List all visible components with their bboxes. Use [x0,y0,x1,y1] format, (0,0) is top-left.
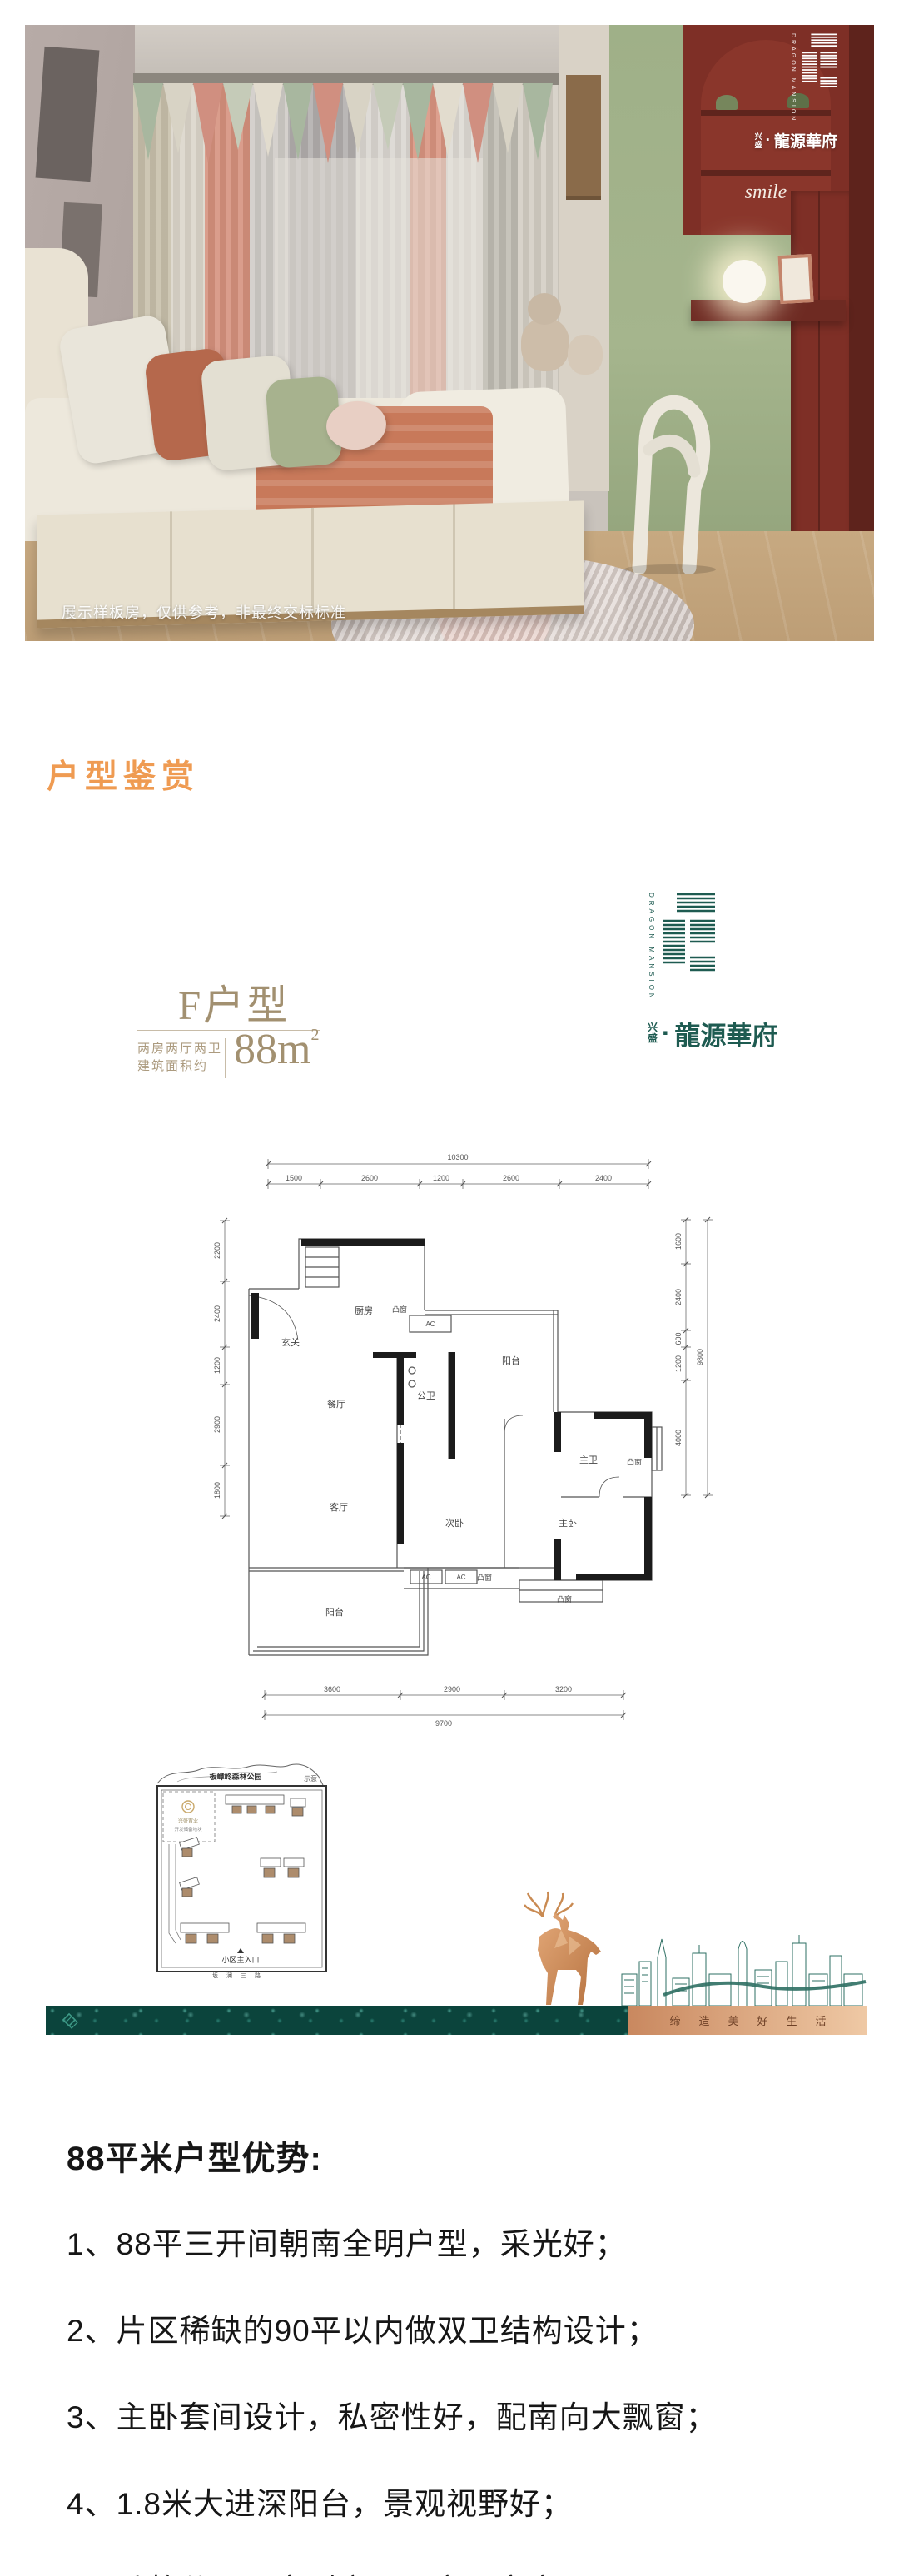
svg-text:阳台: 阳台 [325,1606,344,1618]
unit-vertical-divider [225,1038,226,1078]
photo-pennant-valance [133,83,559,167]
watermark-brand-en: DRAGON MANSION [790,33,796,122]
photo-chair [608,325,749,574]
svg-text:10300: 10300 [447,1153,468,1161]
unit-name: F户型 [178,972,290,1032]
entrance-label: 小区主入口 [221,1955,259,1964]
deer-graphic [499,1890,624,2008]
dimension-lines [220,1159,713,1720]
photo-teddy-bear-small [568,335,603,375]
banner-teal-strip [46,2006,628,2035]
advantage-item: 5、动静分区，户型方正，实用率高 [67,2565,866,2576]
reserve-plot: 兴盛置业 开发储备地块 [163,1792,215,1842]
svg-text:次卧: 次卧 [445,1517,464,1529]
svg-text:2200: 2200 [213,1242,221,1259]
brand-mark-icon [662,893,715,972]
svg-text:开发储备地块: 开发储备地块 [174,1826,202,1833]
brand-name: 兴盛 · 龍源華府 [648,1015,831,1052]
svg-text:4000: 4000 [674,1430,683,1446]
photo-desk [691,300,846,321]
svg-text:1200: 1200 [213,1357,221,1374]
svg-text:兴盛置业: 兴盛置业 [178,1818,198,1824]
park-label: 板嶂岭森林公园 [209,1772,261,1781]
banner-copper-panel: 缔造美好生活 [628,2006,867,2035]
unit-layout: 两房两厅两卫 [137,1040,222,1057]
floor-plan-black-walls [251,1239,652,1580]
svg-text:3200: 3200 [555,1685,572,1693]
deer-body [538,1913,601,2005]
svg-text:9700: 9700 [435,1719,452,1728]
schematic-note: 示意 [304,1774,317,1783]
deer-antlers [524,1892,573,1918]
advantage-item: 4、1.8米大进深阳台，景观视野好； [67,2479,866,2524]
svg-text:1800: 1800 [213,1482,221,1499]
svg-text:凸窗: 凸窗 [627,1457,642,1466]
svg-text:2600: 2600 [503,1174,519,1182]
svg-text:2600: 2600 [361,1174,378,1182]
banner-slogan: 缔造美好生活 [651,2012,844,2028]
svg-text:3600: 3600 [324,1685,340,1693]
unit-area-label: 建筑面积约 [137,1057,222,1075]
watermark-brand-name: 兴盛 · 龍源華府 [688,129,837,152]
advantages-section: 88平米户型优势: 1、88平三开间朝南全明户型，采光好； 2、片区稀缺的90平… [67,2131,866,2576]
svg-text:AC: AC [456,1574,465,1581]
road-label: 坂澜三路 [212,1972,269,1979]
svg-text:主卧: 主卧 [559,1518,577,1529]
brand-mark-icon [801,33,837,88]
svg-text:2400: 2400 [595,1174,612,1182]
svg-text:主卫: 主卫 [579,1455,598,1465]
brand-en-text: DRAGON MANSION [648,893,655,1002]
svg-text:凸窗: 凸窗 [557,1594,572,1604]
svg-text:玄关: 玄关 [281,1336,300,1348]
svg-text:1200: 1200 [433,1174,449,1182]
bedroom-photo: smile DRAGON MANSION [25,25,874,641]
svg-text:1600: 1600 [674,1233,683,1250]
advantage-item: 2、片区稀缺的90平以内做双卫结构设计； [67,2305,866,2350]
svg-text:AC: AC [425,1320,435,1328]
svg-text:厨房: 厨房 [355,1305,373,1316]
photo-teddy-bear [521,318,569,371]
svg-text:1200: 1200 [674,1355,683,1372]
floor-plan: 10300 1500 2600 1200 2600 2400 2200 2400… [210,1147,726,1730]
advantage-item: 3、主卧套间设计，私密性好，配南向大飘窗； [67,2392,866,2437]
city-skyline-graphic [618,1928,867,2006]
svg-text:餐厅: 餐厅 [327,1398,345,1410]
photo-picture-frame [36,47,100,182]
svg-text:9800: 9800 [696,1349,704,1365]
brand-lockup: DRAGON MANSION 兴盛 · 龍源華府 [648,893,831,1052]
svg-text:2900: 2900 [213,1416,221,1433]
svg-text:600: 600 [674,1332,683,1345]
advantages-title: 88平米户型优势: [67,2131,866,2180]
svg-text:2400: 2400 [674,1289,683,1305]
svg-text:AC: AC [421,1574,430,1581]
photo-disclaimer: 展示样板房，仅供参考，非最终交标标准 [62,601,346,623]
svg-text:凸窗: 凸窗 [392,1305,407,1314]
svg-text:2400: 2400 [213,1305,221,1322]
photo-shelf-niche [566,75,601,200]
svg-text:2900: 2900 [444,1685,460,1693]
unit-specs: 两房两厅两卫 建筑面积约 [137,1040,222,1075]
svg-text:阳台: 阳台 [502,1355,520,1366]
photo-teddy-bear-head [528,293,561,325]
svg-text:1500: 1500 [286,1174,302,1182]
site-plan: 板嶂岭森林公园 示意 兴盛置业 开发储备地块 [152,1758,331,1982]
photo-desk-frame [778,254,814,304]
svg-text:凸窗: 凸窗 [477,1573,492,1582]
svg-text:客厅: 客厅 [330,1501,348,1513]
photo-watermark-logo: DRAGON MANSION 兴盛 · 龍源華府 [688,33,837,127]
svg-text:公卫: 公卫 [417,1391,435,1401]
banner-logo-icon [60,2011,80,2031]
section-title: 户型鉴赏 [47,751,200,798]
dimension-labels: 10300 1500 2600 1200 2600 2400 2200 2400… [213,1153,704,1728]
unit-area: 88m2 [234,1025,319,1074]
advantage-item: 1、88平三开间朝南全明户型，采光好； [67,2219,866,2264]
brochure-page: smile DRAGON MANSION [0,0,899,2576]
photo-lamp [723,260,766,303]
